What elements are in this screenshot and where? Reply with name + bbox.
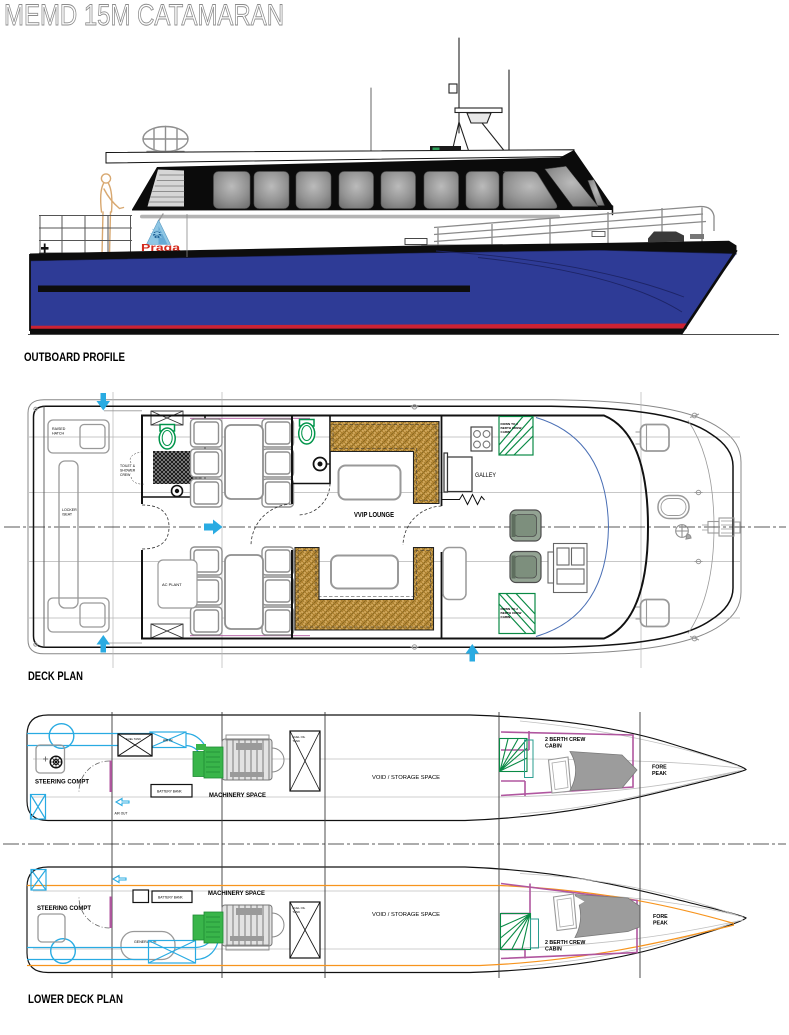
svg-text:MEMD 15M CATAMARAN: MEMD 15M CATAMARAN bbox=[4, 0, 284, 32]
svg-text:VVIP LOUNGE: VVIP LOUNGE bbox=[354, 512, 394, 519]
svg-text:OUTBOARD PROFILE: OUTBOARD PROFILE bbox=[24, 350, 125, 364]
svg-text:RAISED: RAISED bbox=[52, 427, 66, 431]
svg-text:PEAK: PEAK bbox=[653, 921, 668, 927]
svg-text:BATTERY BANK: BATTERY BANK bbox=[158, 896, 184, 900]
svg-text:GALLEY: GALLEY bbox=[475, 472, 497, 479]
svg-text:CABIN: CABIN bbox=[501, 615, 512, 619]
svg-text:PEAK: PEAK bbox=[652, 771, 667, 777]
svg-text:MACHINERY SPACE: MACHINERY SPACE bbox=[209, 793, 266, 799]
svg-text:CABIN: CABIN bbox=[545, 744, 562, 750]
svg-text:CABIN: CABIN bbox=[501, 430, 512, 434]
svg-text:BATTERY BANK: BATTERY BANK bbox=[157, 790, 183, 794]
svg-text:2 BERTH CREW: 2 BERTH CREW bbox=[545, 940, 585, 946]
svg-text:TANK: TANK bbox=[293, 910, 301, 914]
svg-text:VOID / STORAGE SPACE: VOID / STORAGE SPACE bbox=[372, 775, 440, 781]
svg-text:STEERING COMPT: STEERING COMPT bbox=[35, 780, 89, 786]
svg-text:AIR IN: AIR IN bbox=[163, 739, 173, 743]
svg-text:VOID / STORAGE SPACE: VOID / STORAGE SPACE bbox=[372, 912, 440, 918]
svg-text:FUEL TANK: FUEL TANK bbox=[126, 737, 141, 741]
svg-text:LOWER DECK PLAN: LOWER DECK PLAN bbox=[28, 992, 123, 1006]
svg-text:HATCH: HATCH bbox=[52, 432, 65, 436]
svg-text:AC PLANT: AC PLANT bbox=[162, 582, 182, 587]
svg-text:STEERING COMPT: STEERING COMPT bbox=[37, 906, 91, 912]
svg-text:CABIN: CABIN bbox=[545, 947, 562, 953]
svg-text:FORE: FORE bbox=[652, 765, 667, 771]
svg-text:TANK: TANK bbox=[293, 739, 301, 743]
svg-text:FORE: FORE bbox=[653, 914, 668, 920]
svg-text:/SEAT: /SEAT bbox=[62, 513, 73, 517]
svg-text:AIR OUT: AIR OUT bbox=[115, 812, 128, 816]
svg-text:SHOWER: SHOWER bbox=[120, 469, 136, 473]
svg-text:LOCKER: LOCKER bbox=[62, 508, 77, 512]
svg-text:2 BERTH CREW: 2 BERTH CREW bbox=[545, 737, 585, 743]
svg-text:CREW: CREW bbox=[120, 473, 131, 477]
svg-text:DECK PLAN: DECK PLAN bbox=[28, 669, 83, 683]
svg-text:TOILET &: TOILET & bbox=[120, 464, 136, 468]
svg-text:MACHINERY SPACE: MACHINERY SPACE bbox=[208, 891, 265, 897]
